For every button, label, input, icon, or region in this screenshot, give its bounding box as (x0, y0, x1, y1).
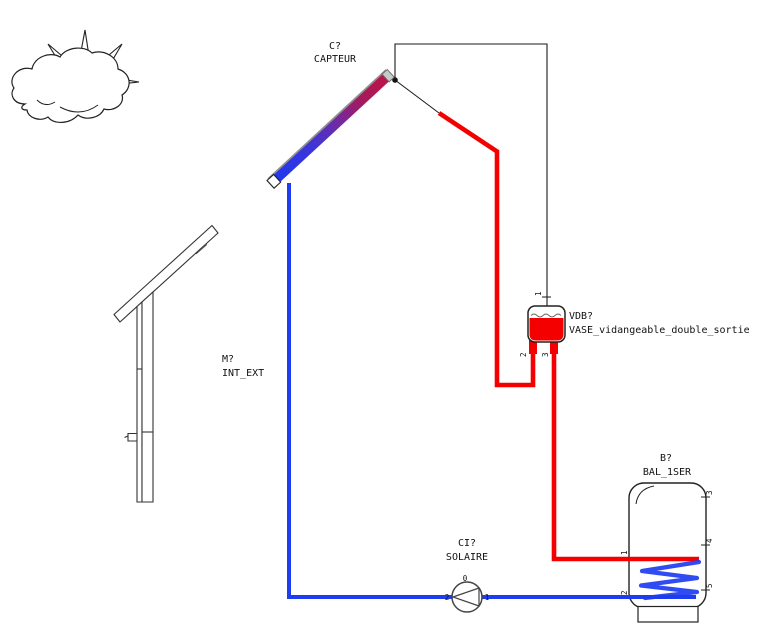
vessel-type-label: VASE_vidangeable_double_sortie (569, 325, 750, 336)
drainback-vessel[interactable] (528, 306, 565, 354)
mast-id-label: M? (222, 354, 234, 365)
vent-line[interactable] (390, 44, 551, 306)
pump-id-label: CI? (458, 538, 476, 549)
mast-post-left (137, 302, 142, 502)
tank-port-right-top-label: 3 (705, 490, 714, 495)
collector-id-label: C? (329, 41, 341, 52)
collector-glazing-line (268, 70, 386, 179)
mast-bracket (125, 434, 138, 442)
vessel-port-bottom-right-label: 3 (541, 352, 550, 357)
tank-port-right-bottom-label: 5 (705, 583, 714, 588)
pump-port-top-label: 0 (463, 574, 468, 583)
tank-type-label: BAL_1SER (643, 467, 692, 478)
tank-port-left-top-label: 1 (620, 550, 629, 555)
tank-port-right-mid-label: 4 (705, 538, 714, 543)
tank-id-label: B? (660, 453, 672, 464)
vessel-liquid-fill (530, 318, 564, 341)
pump-type-label: SOLAIRE (446, 552, 488, 563)
vessel-port-bottom-left-label: 2 (519, 352, 528, 357)
pump-port-right-label: 1 (485, 593, 490, 602)
vessel-id-label: VDB? (569, 311, 593, 322)
schematic-canvas: C? CAPTEUR M? INT_EXT VDB? VASE_vidangea… (0, 0, 763, 643)
tank-port-left-bottom-label: 2 (620, 590, 629, 595)
pump-port-left-label: 2 (445, 593, 450, 602)
collector-type-label: CAPTEUR (314, 54, 357, 65)
collector-tube (272, 74, 390, 183)
sun-cloud-icon[interactable] (12, 30, 139, 122)
tank-pedestal (638, 607, 698, 623)
mast[interactable] (114, 226, 218, 503)
storage-tank[interactable] (629, 483, 706, 622)
mast-type-label: INT_EXT (222, 368, 264, 379)
hot-pipe-collector-to-vessel (439, 113, 533, 385)
vent-line-path (395, 44, 547, 306)
mast-plank (114, 226, 218, 323)
vessel-port-top-label: 1 (534, 291, 543, 296)
solar-collector[interactable] (267, 69, 394, 188)
mast-post-right (142, 292, 153, 502)
pump[interactable] (452, 582, 482, 612)
